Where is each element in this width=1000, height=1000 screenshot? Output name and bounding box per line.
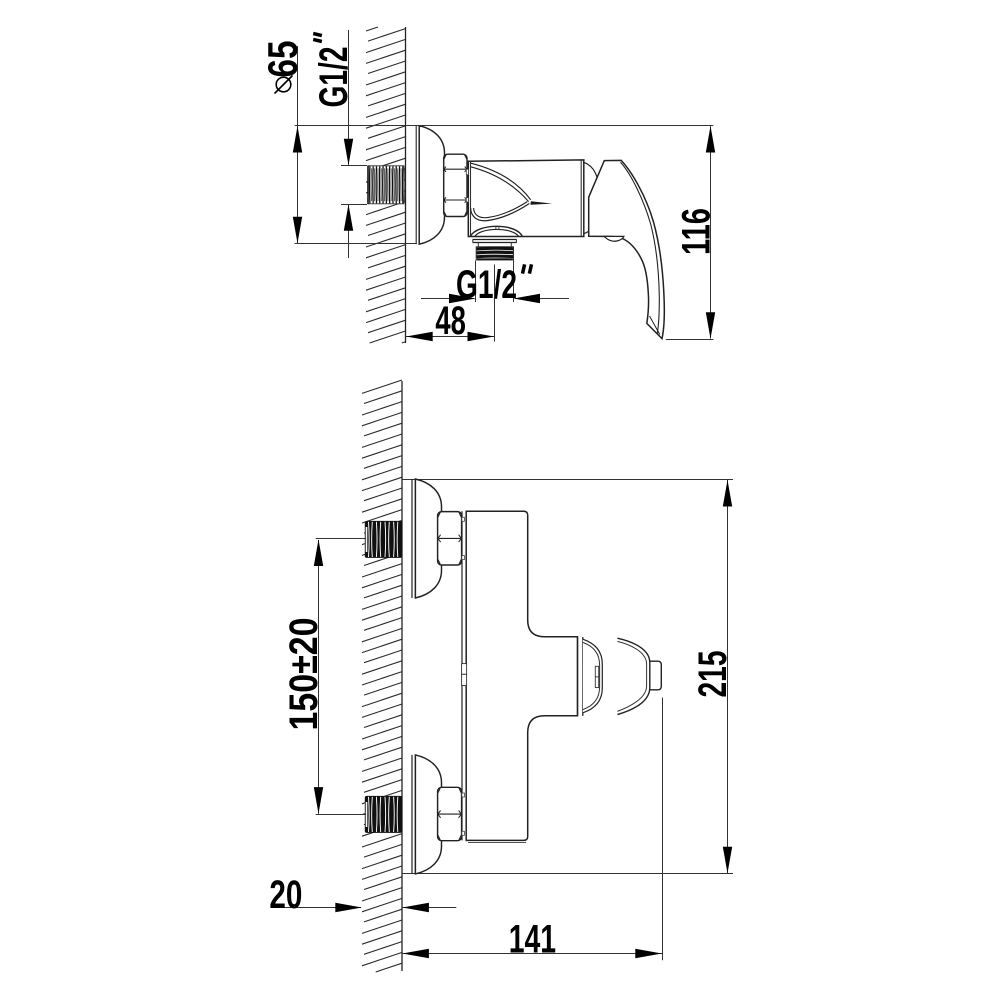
svg-text:116: 116	[675, 208, 719, 255]
svg-text:20: 20	[269, 873, 302, 917]
svg-text:G1/2: G1/2	[312, 47, 356, 108]
svg-text:65: 65	[259, 41, 306, 78]
svg-text:150±20: 150±20	[282, 618, 326, 731]
svg-text:141: 141	[509, 917, 556, 961]
svg-text:48: 48	[435, 299, 466, 343]
svg-text:215: 215	[691, 651, 735, 698]
